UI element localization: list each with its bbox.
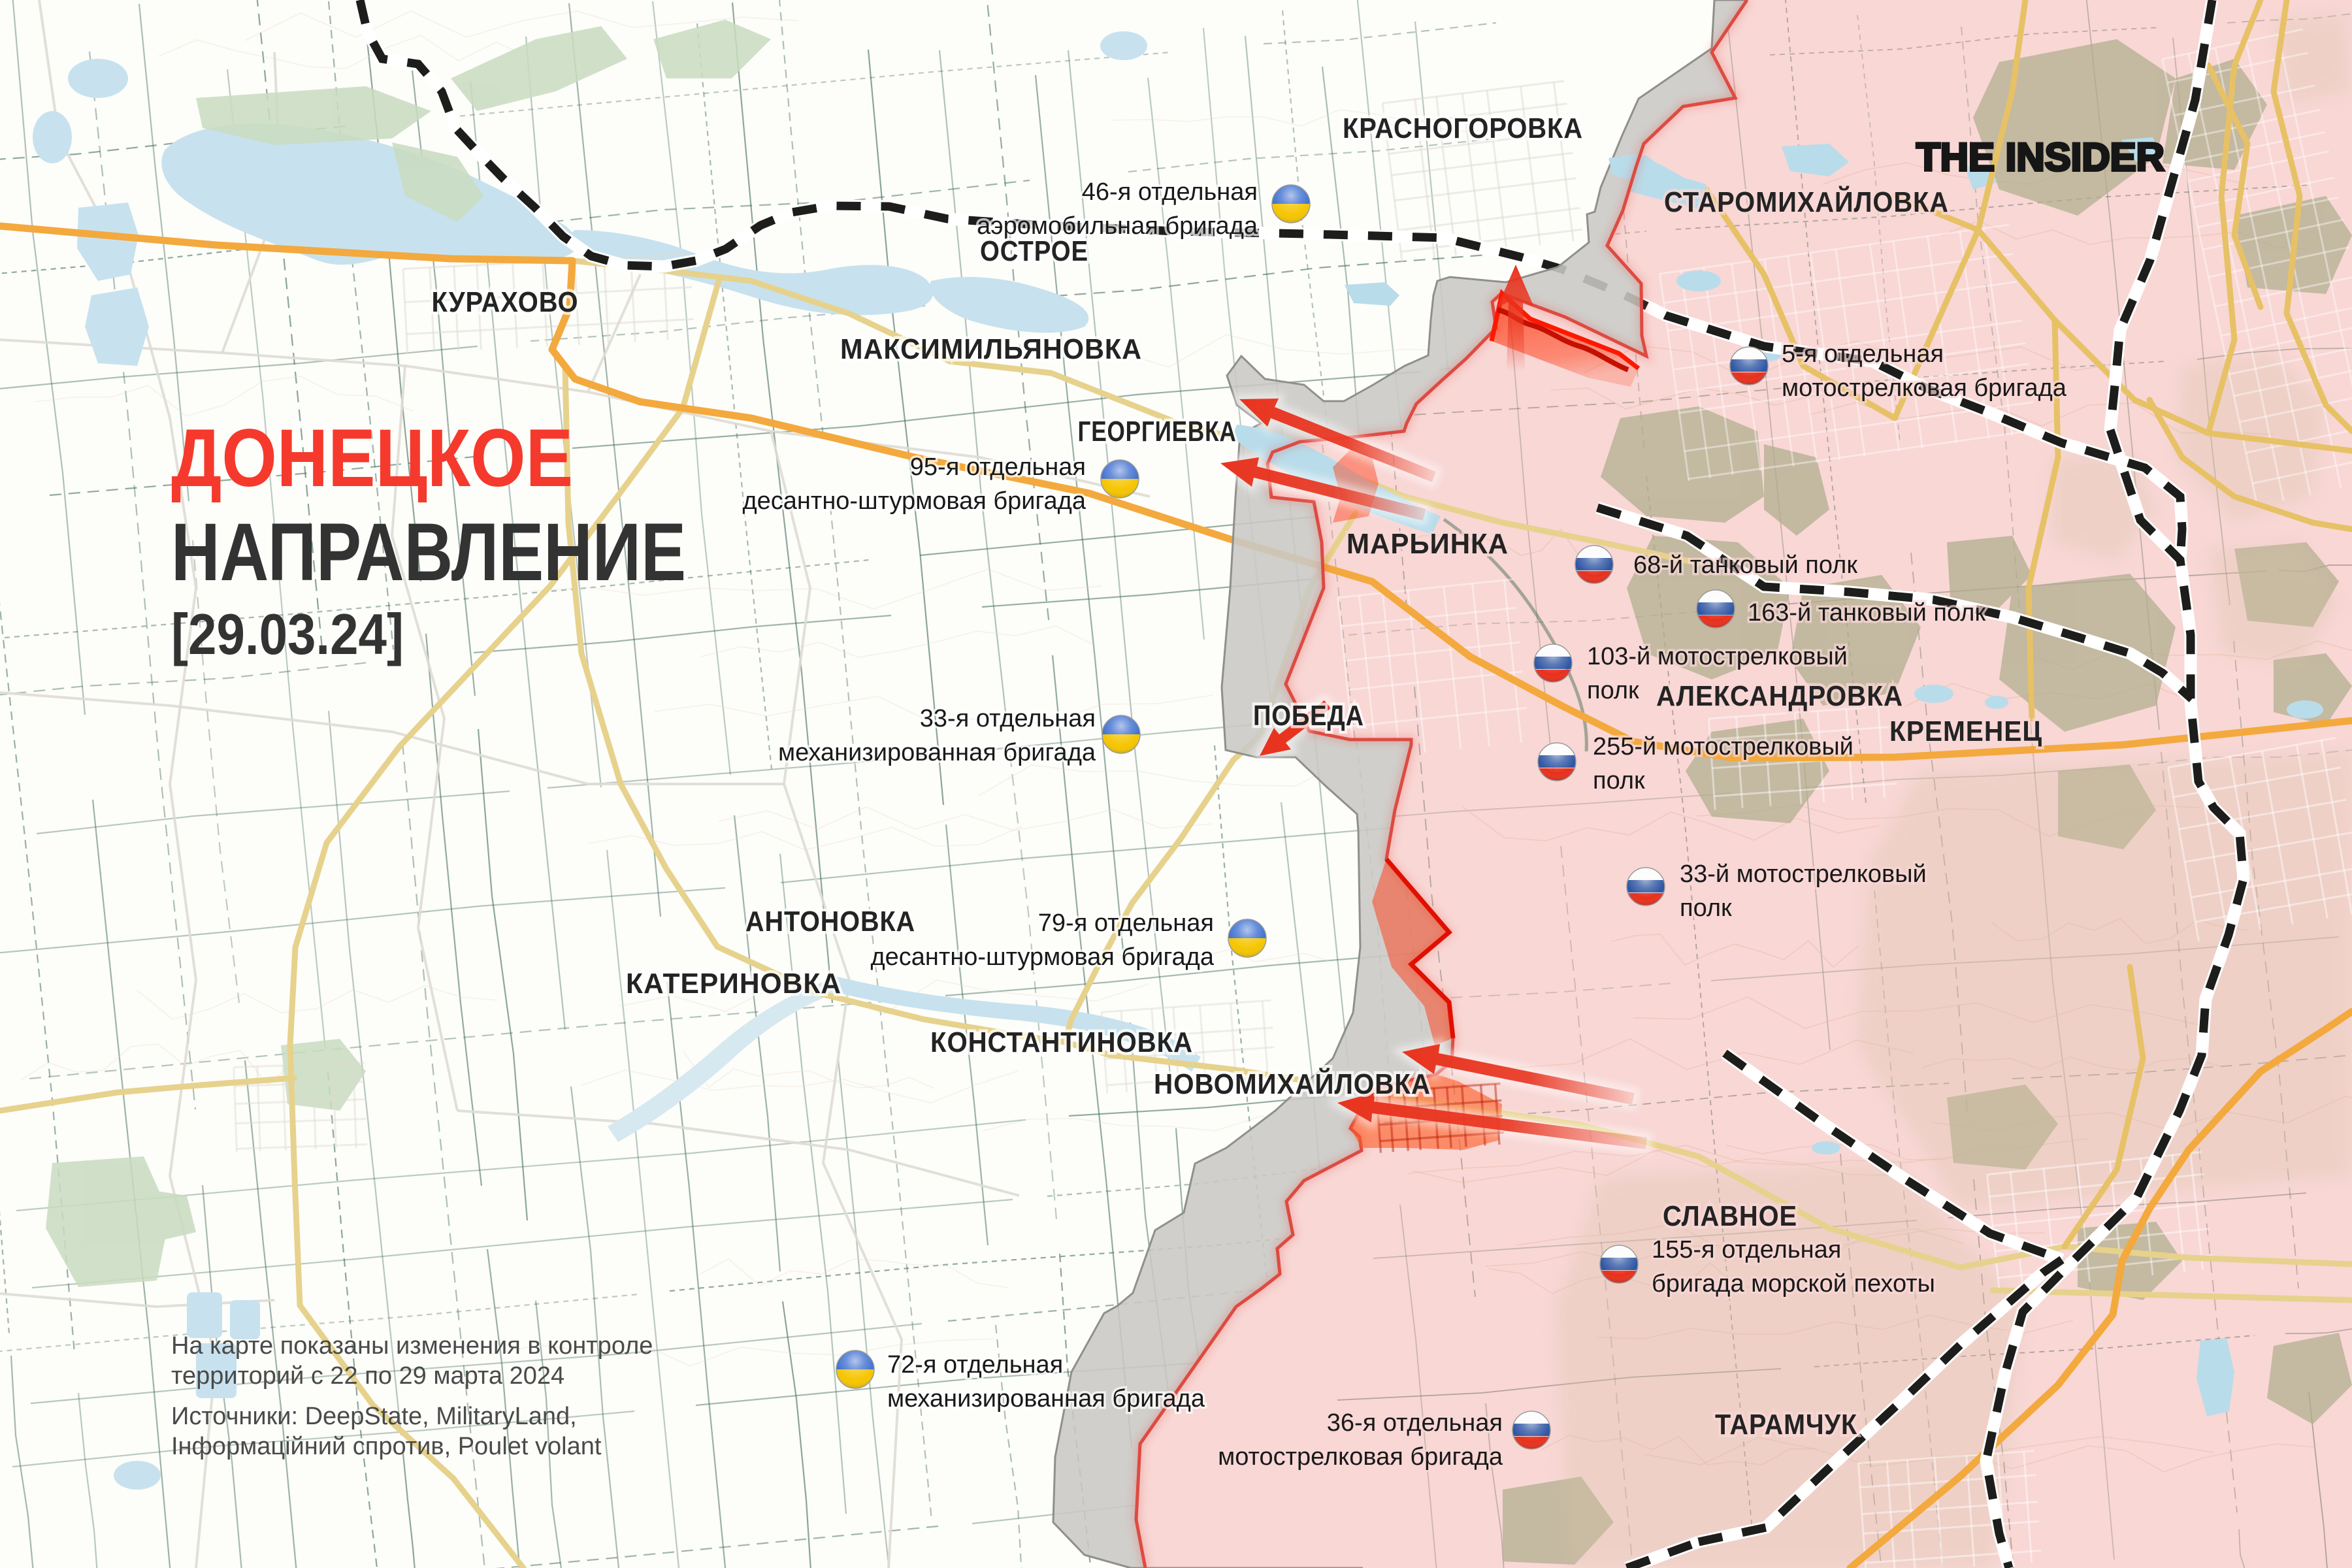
svg-text:33-й мотострелковый: 33-й мотострелковый bbox=[1680, 860, 1927, 888]
svg-text:33-я отдельная: 33-я отдельная bbox=[920, 705, 1096, 732]
svg-text:Источники: DeepState, Military: Источники: DeepState, MilitaryLand, bbox=[171, 1403, 577, 1430]
svg-text:полк: полк bbox=[1680, 894, 1732, 922]
svg-text:72-я отдельная: 72-я отдельная bbox=[887, 1351, 1063, 1379]
svg-text:46-я отдельная: 46-я отдельная bbox=[1082, 178, 1258, 206]
svg-text:[29.03.24]: [29.03.24] bbox=[171, 602, 404, 666]
svg-text:THE INSIDER: THE INSIDER bbox=[1916, 135, 2164, 179]
svg-text:механизированная бригада: механизированная бригада bbox=[778, 739, 1096, 766]
svg-text:территорий с 22 по 29 марта 20: территорий с 22 по 29 марта 2024 bbox=[171, 1362, 564, 1390]
svg-text:АЛЕКСАНДРОВКА: АЛЕКСАНДРОВКА bbox=[1656, 680, 1903, 712]
svg-text:АНТОНОВКА: АНТОНОВКА bbox=[745, 906, 915, 938]
svg-text:КРАСНОГОРОВКА: КРАСНОГОРОВКА bbox=[1343, 112, 1583, 144]
svg-text:МАКСИМИЛЬЯНОВКА: МАКСИМИЛЬЯНОВКА bbox=[840, 333, 1142, 365]
svg-text:НОВОМИХАЙЛОВКА: НОВОМИХАЙЛОВКА bbox=[1154, 1067, 1431, 1100]
svg-text:ОСТРОЕ: ОСТРОЕ bbox=[980, 235, 1088, 267]
svg-text:механизированная бригада: механизированная бригада bbox=[887, 1385, 1205, 1413]
svg-text:255-й мотострелковый: 255-й мотострелковый bbox=[1593, 733, 1854, 760]
svg-text:95-я отдельная: 95-я отдельная bbox=[910, 453, 1086, 481]
svg-text:163-й танковый полк: 163-й танковый полк bbox=[1748, 599, 1985, 627]
svg-text:мотострелковая бригада: мотострелковая бригада bbox=[1218, 1443, 1503, 1471]
svg-text:79-я отдельная: 79-я отдельная bbox=[1038, 909, 1214, 937]
svg-text:ПОБЕДА: ПОБЕДА bbox=[1253, 700, 1364, 732]
svg-text:бригада морской пехоты: бригада морской пехоты bbox=[1652, 1270, 1935, 1298]
svg-text:36-я отдельная: 36-я отдельная bbox=[1327, 1409, 1503, 1437]
svg-text:КРЕМЕНЕЦ: КРЕМЕНЕЦ bbox=[1889, 715, 2042, 747]
svg-text:НАПРАВЛЕНИЕ: НАПРАВЛЕНИЕ bbox=[171, 507, 686, 598]
svg-text:полк: полк bbox=[1593, 767, 1645, 794]
svg-text:мотострелковая бригада: мотострелковая бригада bbox=[1782, 374, 2067, 402]
svg-text:КОНСТАНТИНОВКА: КОНСТАНТИНОВКА bbox=[930, 1026, 1193, 1058]
svg-text:ГЕОРГИЕВКА: ГЕОРГИЕВКА bbox=[1078, 416, 1237, 448]
svg-text:десантно-штурмовая бригада: десантно-штурмовая бригада bbox=[870, 943, 1214, 971]
svg-text:155-я отдельная: 155-я отдельная bbox=[1652, 1236, 1841, 1264]
svg-text:103-й мотострелковый: 103-й мотострелковый bbox=[1587, 643, 1848, 670]
svg-text:СТАРОМИХАЙЛОВКА: СТАРОМИХАЙЛОВКА bbox=[1664, 185, 1949, 218]
svg-text:ТАРАМЧУК: ТАРАМЧУК bbox=[1715, 1409, 1857, 1441]
svg-text:КУРАХОВО: КУРАХОВО bbox=[432, 286, 579, 318]
svg-text:На карте показаны изменения в: На карте показаны изменения в контроле bbox=[171, 1332, 653, 1360]
svg-text:полк: полк bbox=[1587, 677, 1639, 704]
svg-text:Інформаційний спротив, Poulet: Інформаційний спротив, Poulet volant bbox=[171, 1433, 602, 1460]
svg-text:МАРЬИНКА: МАРЬИНКА bbox=[1347, 528, 1509, 560]
svg-text:ДОНЕЦКОЕ: ДОНЕЦКОЕ bbox=[171, 413, 573, 504]
svg-text:КАТЕРИНОВКА: КАТЕРИНОВКА bbox=[626, 968, 841, 1000]
svg-text:68-й танковый полк: 68-й танковый полк bbox=[1633, 551, 1857, 579]
svg-text:5-я отдельная: 5-я отдельная bbox=[1782, 340, 1944, 368]
svg-text:десантно-штурмовая бригада: десантно-штурмовая бригада bbox=[742, 487, 1086, 515]
svg-text:СЛАВНОЕ: СЛАВНОЕ bbox=[1663, 1200, 1797, 1232]
